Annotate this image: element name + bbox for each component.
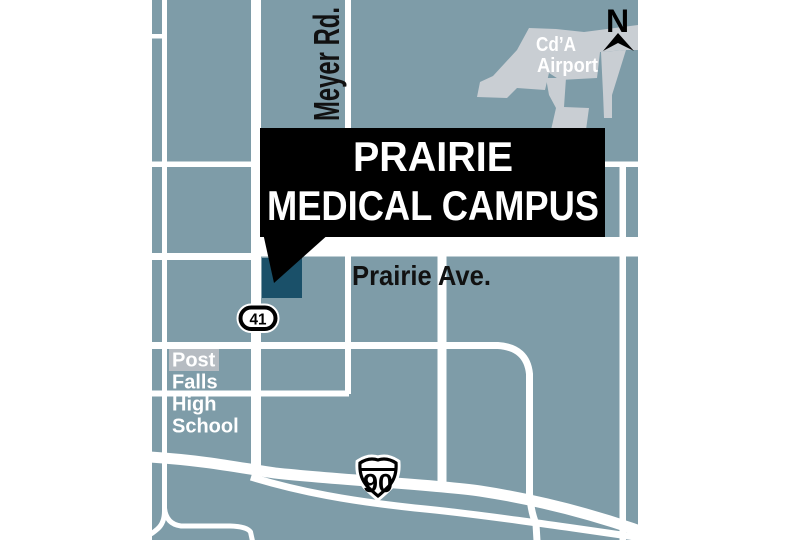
- i90-shield-label: 90: [363, 468, 393, 498]
- callout-title-line2: MEDICAL CAMPUS: [267, 182, 599, 229]
- callout-title-line1: PRAIRIE: [353, 133, 513, 180]
- school-label-line2: Falls: [172, 372, 218, 394]
- school-label-line4: School: [172, 416, 239, 438]
- road-local-east: [620, 163, 627, 540]
- airport-label-line2: Airport: [537, 55, 598, 77]
- school-label-line3: High: [172, 394, 216, 416]
- road-hwy41: [251, 0, 261, 471]
- map-svg: PRAIRIE MEDICAL CAMPUS Meyer Rd. Prairie…: [0, 0, 791, 540]
- i90-shield: 90: [360, 459, 396, 498]
- school-label-line1: Post: [172, 350, 216, 372]
- route-41-shield: 41: [241, 308, 276, 330]
- road-prairie-ave-west: [152, 253, 256, 260]
- meyer-rd-label: Meyer Rd.: [306, 7, 347, 121]
- north-label: N: [606, 3, 629, 39]
- route-41-shield-label: 41: [250, 312, 267, 329]
- map-figure: PRAIRIE MEDICAL CAMPUS Meyer Rd. Prairie…: [0, 0, 791, 540]
- airport-label-line1: Cd’A: [536, 34, 576, 56]
- prairie-ave-label: Prairie Ave.: [352, 260, 491, 291]
